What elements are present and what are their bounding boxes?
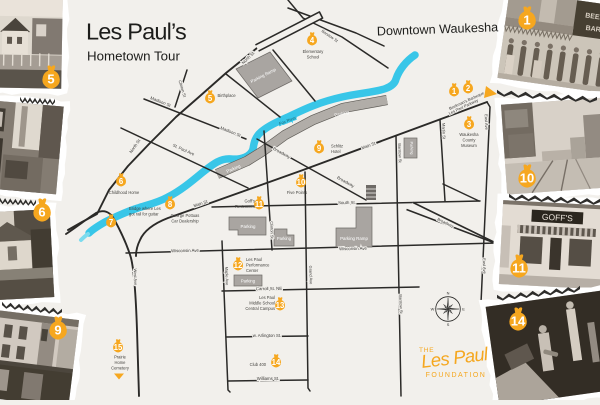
svg-text:5: 5 bbox=[208, 94, 213, 103]
svg-text:Central Campus: Central Campus bbox=[245, 306, 275, 311]
svg-text:South St.: South St. bbox=[338, 200, 356, 205]
svg-text:Wisconsin Ave: Wisconsin Ave bbox=[339, 246, 368, 251]
svg-text:14: 14 bbox=[272, 358, 281, 367]
svg-text:Barstow St: Barstow St bbox=[397, 143, 403, 163]
svg-text:7: 7 bbox=[109, 218, 113, 227]
svg-text:6: 6 bbox=[119, 177, 124, 186]
svg-text:Goff's: Goff's bbox=[245, 199, 256, 204]
svg-text:Les Paul: Les Paul bbox=[246, 257, 262, 262]
svg-text:Museum: Museum bbox=[461, 143, 477, 148]
svg-text:1: 1 bbox=[523, 13, 530, 28]
svg-text:Five Points: Five Points bbox=[287, 190, 307, 195]
svg-text:Bridge where Les: Bridge where Les bbox=[129, 206, 161, 211]
svg-text:Hometown Tour: Hometown Tour bbox=[87, 49, 180, 64]
svg-text:FOUNDATION: FOUNDATION bbox=[426, 372, 487, 379]
svg-text:West Ave: West Ave bbox=[133, 268, 139, 286]
svg-text:14: 14 bbox=[511, 314, 526, 329]
svg-text:Home: Home bbox=[115, 360, 127, 365]
svg-text:Parking: Parking bbox=[241, 224, 256, 229]
svg-text:Prairie: Prairie bbox=[114, 355, 127, 360]
svg-text:Maple Ave: Maple Ave bbox=[224, 267, 230, 287]
svg-text:George Pottuas: George Pottuas bbox=[171, 213, 200, 218]
svg-text:Parking: Parking bbox=[241, 279, 256, 284]
svg-text:School: School bbox=[307, 54, 320, 59]
svg-text:Williams St.: Williams St. bbox=[257, 376, 279, 381]
svg-text:2: 2 bbox=[466, 84, 471, 93]
svg-text:10: 10 bbox=[297, 178, 306, 187]
svg-text:5: 5 bbox=[47, 72, 54, 87]
svg-text:East Ave: East Ave bbox=[482, 258, 488, 275]
svg-text:East Ave: East Ave bbox=[484, 114, 490, 131]
svg-text:N: N bbox=[447, 290, 450, 295]
svg-text:County: County bbox=[463, 137, 477, 142]
svg-text:13: 13 bbox=[276, 301, 285, 310]
svg-text:Center: Center bbox=[246, 268, 259, 273]
svg-text:Clinton St: Clinton St bbox=[269, 221, 275, 239]
svg-text:Childhood Home: Childhood Home bbox=[109, 190, 140, 195]
svg-text:Parking Ramp: Parking Ramp bbox=[340, 236, 368, 241]
svg-text:Parking: Parking bbox=[277, 236, 292, 241]
svg-text:Car Dealership: Car Dealership bbox=[171, 218, 199, 223]
svg-text:9: 9 bbox=[317, 144, 322, 153]
svg-text:3: 3 bbox=[467, 120, 472, 129]
svg-text:Waukesha: Waukesha bbox=[459, 132, 479, 137]
svg-text:Grand Ave: Grand Ave bbox=[308, 265, 314, 285]
svg-text:Carroll St. NE: Carroll St. NE bbox=[256, 286, 282, 291]
svg-text:got rail for guitar: got rail for guitar bbox=[129, 211, 159, 216]
svg-text:10: 10 bbox=[520, 171, 534, 186]
svg-text:S: S bbox=[447, 322, 450, 327]
svg-text:Club 400: Club 400 bbox=[250, 362, 267, 367]
svg-text:E: E bbox=[462, 306, 465, 311]
svg-text:Les Paul’s: Les Paul’s bbox=[86, 19, 186, 45]
svg-text:w. Arlington St.: w. Arlington St. bbox=[253, 333, 281, 338]
svg-text:Martin St: Martin St bbox=[441, 123, 447, 140]
svg-text:Restaurant: Restaurant bbox=[235, 204, 256, 209]
svg-text:11: 11 bbox=[512, 261, 526, 276]
svg-text:Performance: Performance bbox=[246, 262, 270, 267]
svg-text:12: 12 bbox=[234, 261, 243, 270]
svg-text:Birthplace: Birthplace bbox=[218, 93, 237, 98]
svg-text:Hotel: Hotel bbox=[331, 149, 341, 154]
svg-text:9: 9 bbox=[54, 323, 61, 338]
svg-text:6: 6 bbox=[38, 205, 45, 220]
svg-text:8: 8 bbox=[168, 200, 173, 209]
svg-text:1: 1 bbox=[452, 87, 457, 96]
svg-text:Elementary: Elementary bbox=[303, 49, 325, 54]
svg-text:Schlitz: Schlitz bbox=[331, 144, 343, 149]
svg-text:Les Paul: Les Paul bbox=[259, 295, 275, 300]
svg-text:11: 11 bbox=[255, 200, 264, 209]
svg-text:Middle School: Middle School bbox=[249, 300, 275, 305]
svg-text:W: W bbox=[431, 306, 435, 311]
svg-text:4: 4 bbox=[310, 36, 315, 45]
svg-text:Cemetery: Cemetery bbox=[111, 365, 130, 370]
svg-text:15: 15 bbox=[114, 343, 123, 352]
svg-text:Parking: Parking bbox=[409, 141, 413, 154]
svg-text:Wisconsin Ave: Wisconsin Ave bbox=[171, 248, 200, 253]
svg-text:Barstow St: Barstow St bbox=[398, 294, 404, 314]
